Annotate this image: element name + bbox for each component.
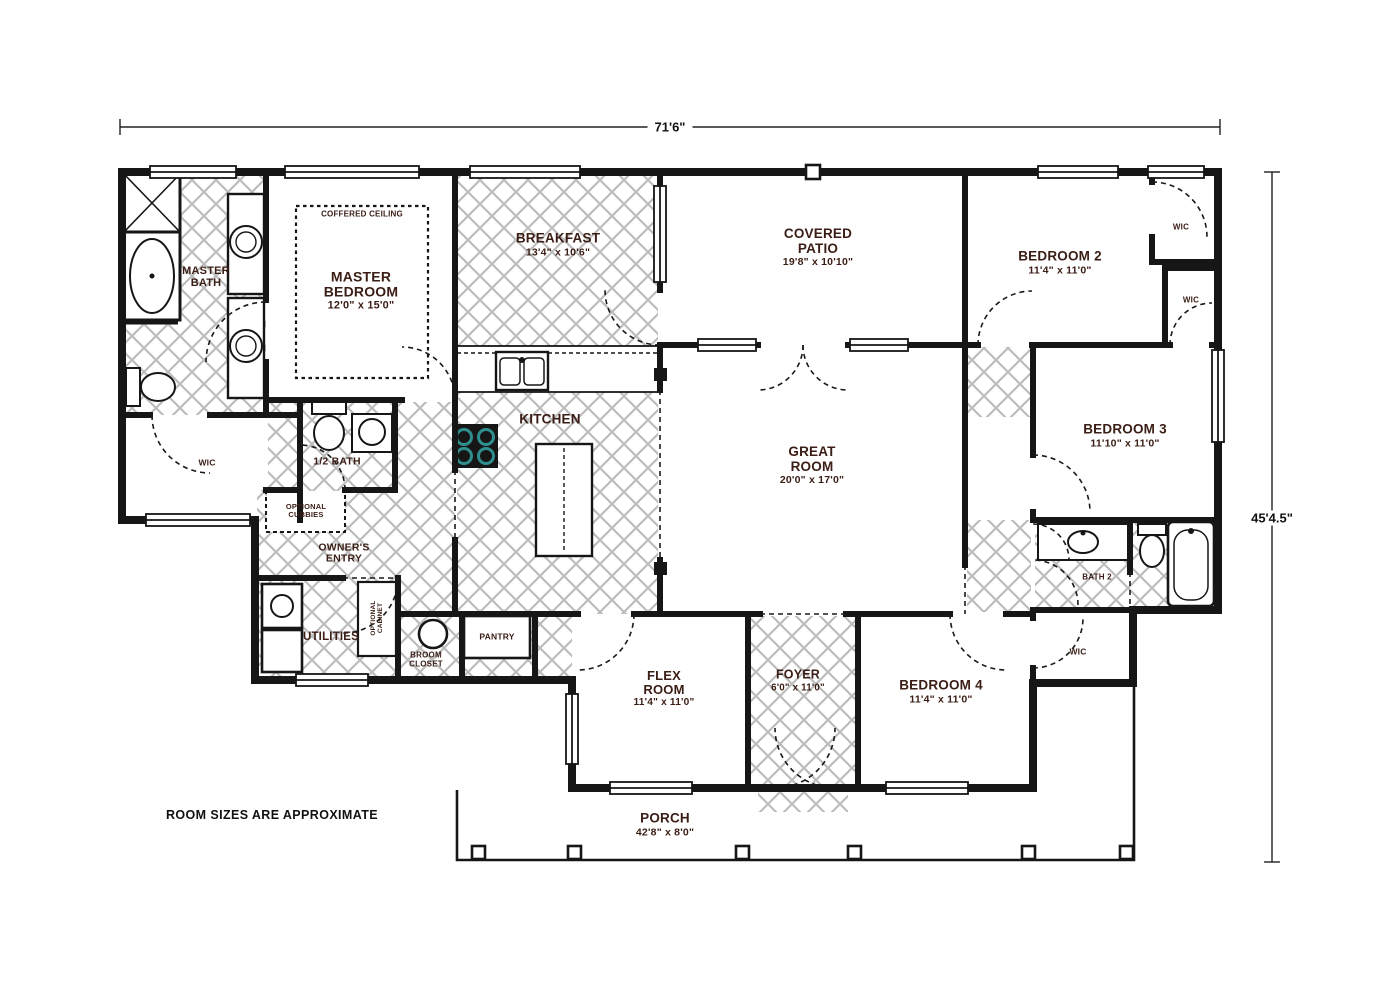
overall-width-dimension: 71'6" [648,120,693,135]
room-label-utilities: UTILITIES [303,631,359,643]
room-label-breakfast: BREAKFAST 13'4" x 10'6" [516,232,600,259]
room-label-porch: PORCH 42'8" x 8'0" [636,812,694,839]
room-label-master-bath: MASTER BATH [182,266,230,290]
floor-plan-drawing [0,0,1400,1002]
room-label-owners-entry: OWNER'S ENTRY [318,543,369,566]
room-label-wic-bed4: WIC [1069,647,1086,656]
label-optional-cabinet: OPTIONAL CABINET [370,600,384,635]
cooktop [452,424,498,468]
room-label-broom-closet: BROOM CLOSET [409,651,443,668]
room-label-pantry: PANTRY [479,632,514,641]
overall-height-dimension: 45'4.5" [1244,511,1300,526]
label-optional-cubbies: OPTIONAL CUBBIES [286,503,326,519]
room-label-master-bedroom: MASTER BEDROOM 12'0" x 15'0" [324,270,399,313]
room-label-bath-2: BATH 2 [1082,574,1112,583]
room-label-bedroom-2: BEDROOM 2 11'4" x 11'0" [1018,250,1102,277]
approximate-sizes-note: ROOM SIZES ARE APPROXIMATE [166,808,378,822]
room-label-wic-bed2-b: WIC [1183,297,1199,306]
coffered-ceiling-label: COFFERED CEILING [321,211,403,220]
room-label-foyer: FOYER 6'0" x 11'0" [771,668,825,693]
room-label-kitchen: KITCHEN [519,413,580,428]
room-label-half-bath: 1/2 BATH [313,456,361,467]
room-label-covered-patio: COVERED PATIO 19'8" x 10'10" [783,227,853,269]
room-label-wic-bed2-a: WIC [1173,224,1189,233]
room-label-wic-master: WIC [198,458,215,467]
room-label-flex-room: FLEX ROOM 11'4" x 11'0" [634,669,695,709]
room-label-great-room: GREAT ROOM 20'0" x 17'0" [780,445,844,487]
floor-plan-page: 71'6" 45'4.5" ROOM SIZES ARE APPROXIMATE… [0,0,1400,1002]
room-label-bedroom-4: BEDROOM 4 11'4" x 11'0" [899,679,983,706]
room-label-bedroom-3: BEDROOM 3 11'10" x 11'0" [1083,423,1167,450]
